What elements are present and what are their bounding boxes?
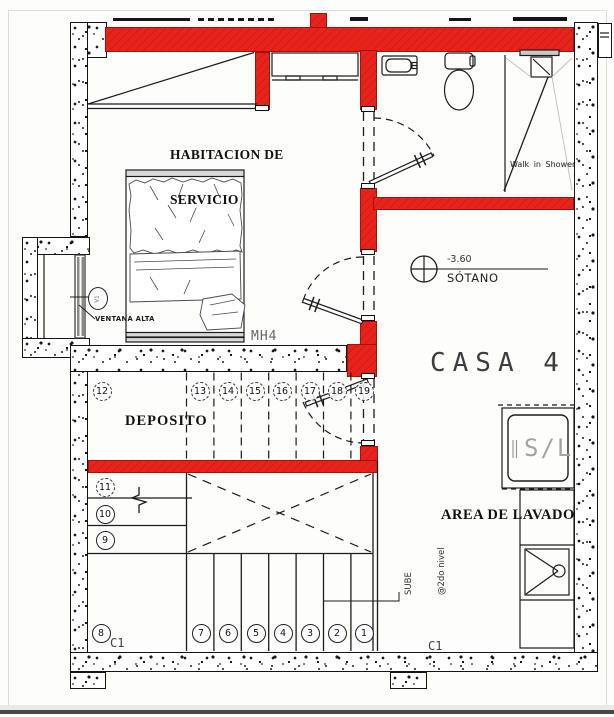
house-label: CASA 4 — [430, 348, 566, 378]
stairs-left-treads — [88, 473, 373, 554]
label-sube: SUBE @2do nivel — [382, 535, 406, 595]
stair-step-number: 1 — [355, 624, 374, 643]
corner-ticks — [600, 33, 609, 37]
label-washer-dryer: S/L — [524, 434, 573, 462]
stairs-upper-treads — [187, 373, 351, 461]
stair-step-number: 4 — [274, 624, 293, 643]
stair-step-number: 5 — [247, 624, 266, 643]
door-frame-cap — [361, 315, 375, 321]
room-label-deposito: DEPOSITO — [125, 413, 208, 430]
walk-in-shower — [504, 50, 572, 192]
viewport-edge-dark — [0, 710, 614, 714]
door-frame-cap — [361, 106, 375, 112]
stair-step-number: 9 — [96, 531, 115, 550]
stair-step-number: 8 — [92, 624, 111, 643]
closet — [88, 53, 257, 109]
stair-step-number: 7 — [192, 624, 211, 643]
room-label-habitacion: HABITACION DE SERVICIO — [170, 117, 284, 237]
floor-plan-canvas: HABITACION DE SERVICIO DEPOSITO AREA DE … — [0, 0, 614, 717]
door-frame-cap — [361, 373, 375, 379]
door-frame-cap — [361, 249, 375, 255]
door-frame-cap — [361, 440, 375, 446]
cabinet — [272, 53, 358, 80]
stair-step-number: 2 — [328, 624, 347, 643]
door-hall — [301, 257, 365, 328]
sink — [382, 56, 417, 75]
door-bathroom — [367, 118, 435, 190]
stair-step-number: 13 — [191, 382, 210, 401]
label-walk-in-shower: Walk in Shower — [510, 160, 575, 169]
stair-step-number: 10 — [96, 505, 115, 524]
landing-x — [188, 474, 371, 552]
stair-step-number: 16 — [273, 382, 292, 401]
break-line-symbol — [132, 487, 146, 513]
stair-step-number: 12 — [93, 382, 112, 401]
label-ventana-alta: VENTANA ALTA — [95, 315, 155, 323]
stair-step-number: 19 — [355, 382, 374, 401]
room-label-area-lavado: AREA DE LAVADO — [441, 507, 575, 524]
stair-step-number: 6 — [219, 624, 238, 643]
stair-step-number: 14 — [219, 382, 238, 401]
label-mh4: MH4 — [251, 329, 277, 344]
stair-step-number: 18 — [328, 382, 347, 401]
door-frame-cap — [255, 105, 269, 111]
level-name: SÓTANO — [447, 271, 499, 285]
level-elevation: -3.60 — [447, 254, 472, 265]
stair-step-number: 17 — [301, 382, 320, 401]
stair-step-number: 15 — [246, 382, 265, 401]
stairs-lower-treads — [187, 461, 378, 651]
stair-step-number: 3 — [301, 624, 320, 643]
label-c1-right: C1 — [428, 639, 442, 653]
stair-step-number: 11 — [96, 478, 115, 497]
door-frame-cap — [361, 183, 375, 189]
toilet — [445, 53, 476, 110]
window-tag-circle: V1 — [88, 287, 108, 310]
label-c1-left: C1 — [110, 636, 124, 650]
